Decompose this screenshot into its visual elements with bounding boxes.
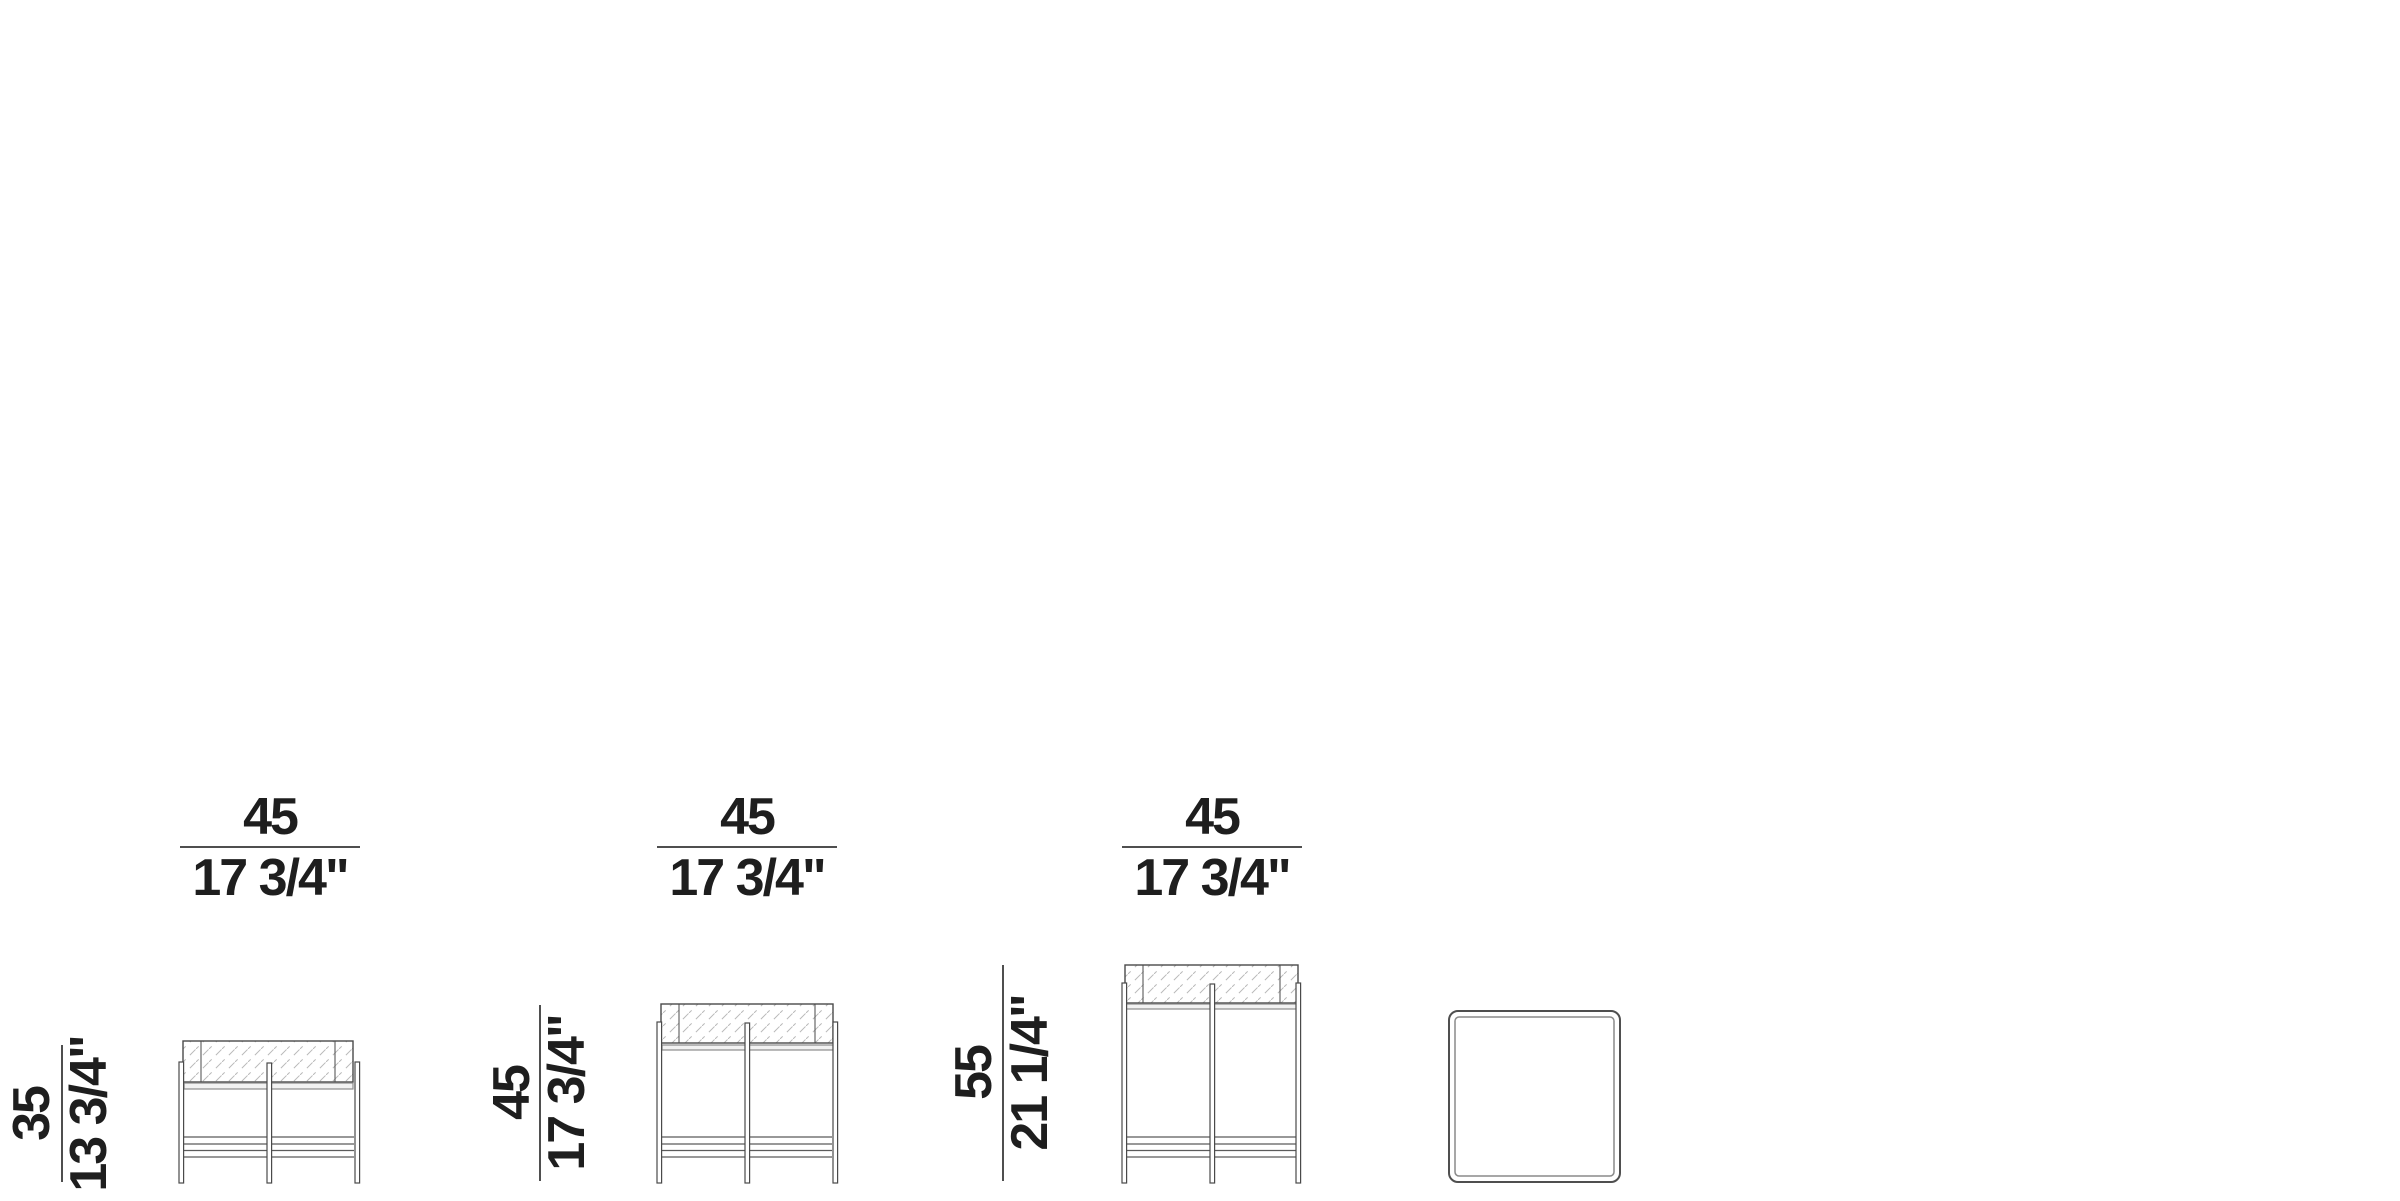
width-value-cm: 45 [720,791,774,843]
fraction-bar [180,846,360,848]
side-table-drawing-h55 [1115,961,1315,1189]
height-value-cm: 55 [948,1046,1000,1100]
leg-left [179,1062,184,1183]
fraction-bar [657,846,837,848]
tabletop-outer-edge [1449,1011,1620,1182]
height-value-cm: 35 [6,1087,58,1141]
leg-center [267,1063,272,1183]
width-value-inches: 17 3/4" [669,852,824,904]
height-value-inches: 13 3/4" [63,1036,115,1191]
width-dimension-h55: 45 17 3/4" [1122,791,1302,904]
height-value-cm: 45 [486,1066,538,1120]
leg-left [1122,983,1127,1183]
side-table-drawing-h35 [170,1036,370,1190]
leg-right [355,1062,360,1183]
height-value-inches: 17 3/4" [541,1015,593,1170]
leg-center [745,1023,750,1183]
width-value-cm: 45 [1185,791,1239,843]
leg-right [1296,983,1301,1183]
leg-center [1210,984,1215,1183]
width-value-inches: 17 3/4" [192,852,347,904]
height-value-inches: 21 1/4" [1004,995,1056,1150]
table-top-view-drawing [1446,1008,1624,1186]
legs [1122,983,1301,1183]
side-table-drawing-h45 [650,1000,850,1190]
leg-right [833,1022,838,1183]
width-dimension-h35: 45 17 3/4" [180,791,360,904]
product-dimensions-diagram: 45 17 3/4" 35 13 3/4" [0,0,2400,1201]
leg-left [657,1022,662,1183]
width-value-inches: 17 3/4" [1134,852,1289,904]
fraction-bar [1122,846,1302,848]
width-dimension-h45: 45 17 3/4" [657,791,837,904]
width-value-cm: 45 [243,791,297,843]
